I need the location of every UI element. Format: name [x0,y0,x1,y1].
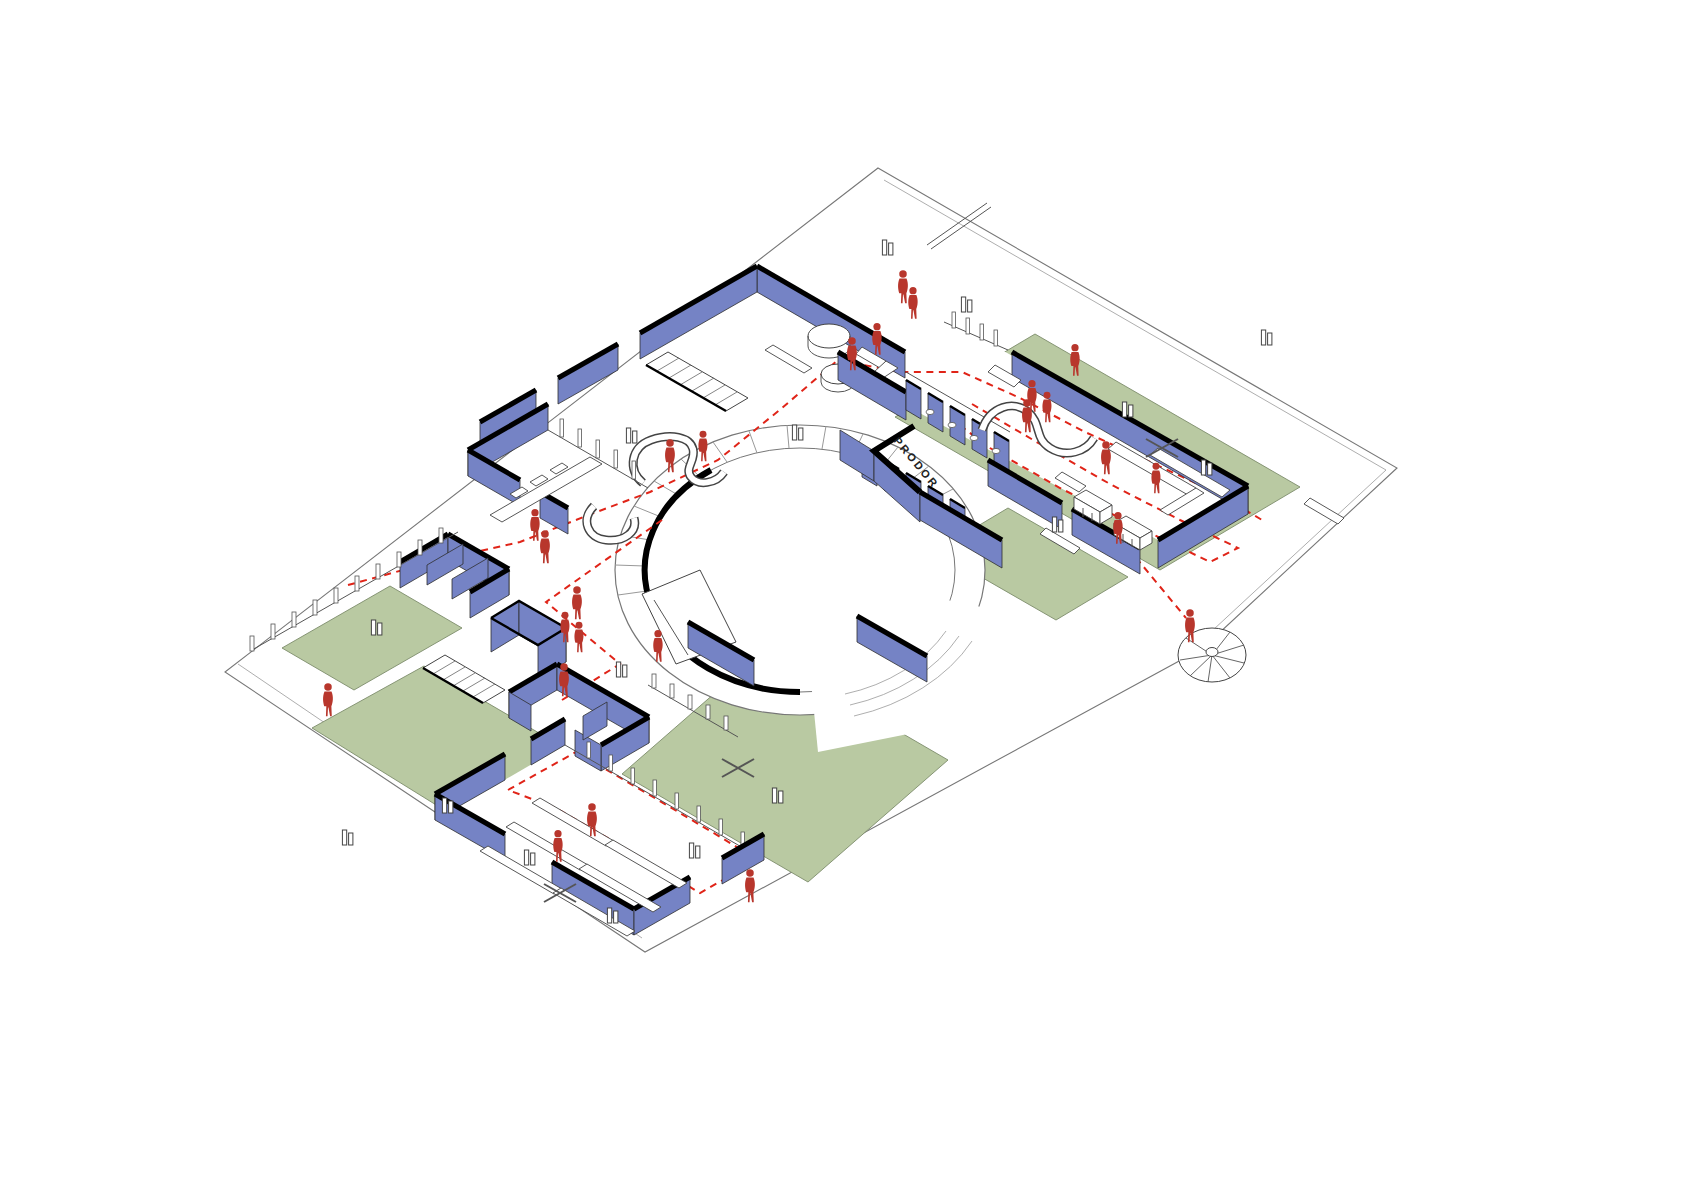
diagram-canvas: PRODOR [0,0,1687,1191]
marker-icon [342,830,353,845]
person-figure [745,869,755,902]
marker-icon [1261,330,1272,345]
axonometric-diagram: PRODOR [0,0,1687,1191]
